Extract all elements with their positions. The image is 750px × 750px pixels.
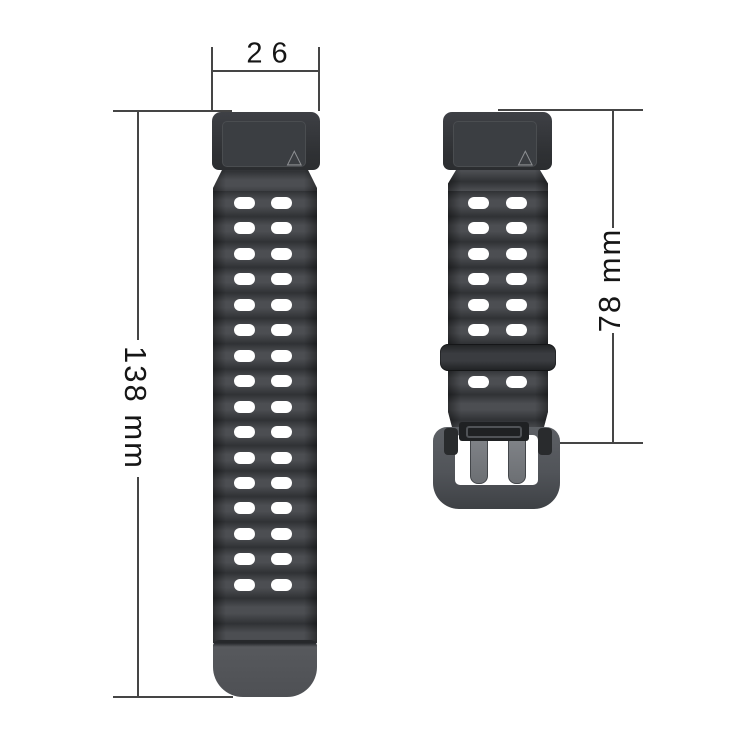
strap-hole — [506, 299, 527, 311]
strap-dimension-diagram: 26 138 mm 78 mm △ △ — [0, 0, 750, 750]
dim-26-ext-left — [211, 47, 213, 111]
dim-26-ext-right — [318, 47, 320, 111]
buckle-hinge-left — [444, 428, 458, 455]
strap-hole — [271, 452, 292, 464]
strap-hole — [234, 350, 255, 362]
dim-78-line-lower — [612, 333, 614, 444]
buckle-hinge-right — [538, 428, 552, 455]
strap-hole — [234, 324, 255, 336]
long-strap-connector-panel: △ — [222, 121, 306, 167]
strap-hole — [234, 273, 255, 285]
strap-hole — [271, 197, 292, 209]
strap-hole — [234, 375, 255, 387]
strap-hole — [234, 401, 255, 413]
dim-138-label: 138 mm — [117, 346, 153, 470]
strap-hole — [271, 350, 292, 362]
dim-138-ext-bottom — [113, 696, 233, 698]
strap-hole — [271, 502, 292, 514]
strap-hole — [271, 528, 292, 540]
dim-138-ext-top — [113, 110, 232, 112]
strap-hole — [271, 553, 292, 565]
strap-hole — [234, 502, 255, 514]
strap-hole — [468, 222, 489, 234]
strap-hole — [506, 248, 527, 260]
strap-hole — [271, 273, 292, 285]
strap-hole — [271, 324, 292, 336]
dim-78-line-upper — [612, 109, 614, 228]
strap-hole — [506, 324, 527, 336]
strap-hole — [468, 197, 489, 209]
strap-hole — [234, 553, 255, 565]
strap-hole — [506, 197, 527, 209]
strap-hole — [506, 222, 527, 234]
strap-hole — [271, 299, 292, 311]
strap-fold-bar-slot — [466, 426, 522, 438]
keeper-loop — [440, 344, 556, 371]
strap-hole — [234, 222, 255, 234]
strap-hole — [234, 197, 255, 209]
dim-138-line-upper — [137, 110, 139, 340]
strap-hole — [468, 299, 489, 311]
strap-hole — [234, 248, 255, 260]
strap-hole — [506, 273, 527, 285]
strap-hole — [234, 477, 255, 489]
strap-hole — [468, 273, 489, 285]
strap-hole — [271, 579, 292, 591]
long-strap-connector: △ — [212, 112, 320, 170]
strap-hole — [234, 579, 255, 591]
long-strap-body — [213, 165, 317, 643]
short-strap-connector: △ — [443, 112, 552, 170]
strap-hole — [271, 222, 292, 234]
strap-hole — [234, 528, 255, 540]
strap-hole — [506, 376, 527, 388]
strap-hole — [271, 375, 292, 387]
strap-hole — [234, 299, 255, 311]
strap-hole — [468, 324, 489, 336]
strap-hole — [271, 426, 292, 438]
triangle-mark-icon: △ — [518, 147, 533, 167]
strap-hole — [468, 376, 489, 388]
strap-hole — [271, 477, 292, 489]
dim-26-label: 26 — [237, 38, 296, 71]
triangle-mark-icon: △ — [287, 147, 302, 167]
strap-hole — [271, 248, 292, 260]
strap-hole — [271, 401, 292, 413]
long-strap-tip — [213, 640, 317, 697]
strap-hole — [468, 248, 489, 260]
dim-78-ext-top — [498, 109, 643, 111]
dim-78-label: 78 mm — [592, 228, 628, 333]
dim-138-line-lower — [137, 477, 139, 698]
strap-hole — [234, 426, 255, 438]
strap-hole — [234, 452, 255, 464]
short-strap-connector-panel: △ — [453, 121, 537, 167]
short-strap-body — [448, 165, 548, 429]
